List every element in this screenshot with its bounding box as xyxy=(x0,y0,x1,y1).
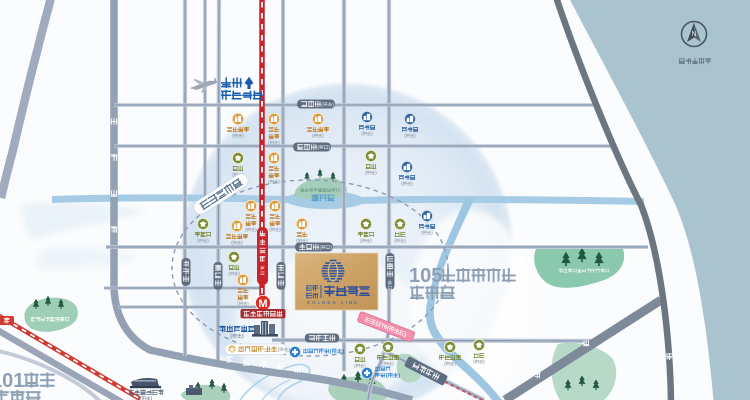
svg-text:): ) xyxy=(398,373,400,379)
svg-text:GOLDEN LINE: GOLDEN LINE xyxy=(307,300,359,305)
svg-text:N: N xyxy=(691,31,696,38)
svg-text:): ) xyxy=(242,334,244,340)
svg-text:(: ( xyxy=(230,334,232,340)
svg-text:105: 105 xyxy=(409,265,442,287)
svg-text:(: ( xyxy=(330,349,332,355)
svg-text:101: 101 xyxy=(0,370,24,392)
svg-text:M: M xyxy=(258,298,267,310)
svg-text:(: ( xyxy=(386,373,388,379)
svg-text:): ) xyxy=(342,349,344,355)
